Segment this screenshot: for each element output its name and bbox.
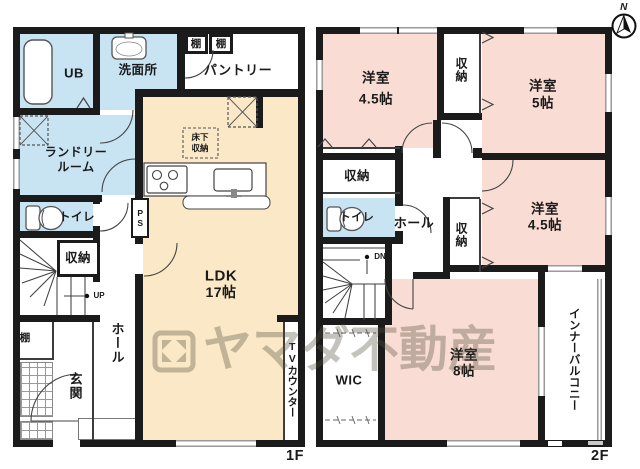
label-stairs-down: DN [374, 253, 386, 261]
balcony-opening [548, 441, 562, 446]
wall [316, 237, 403, 244]
wall [93, 34, 100, 110]
wall [413, 272, 450, 279]
wall [316, 153, 403, 160]
balcony-edge [597, 279, 602, 440]
label-laundry-2: ルーム [57, 161, 94, 173]
window [316, 60, 323, 90]
window [13, 159, 20, 189]
wall [135, 97, 143, 200]
window [176, 440, 256, 447]
label-floor-1f: 1F [286, 449, 304, 464]
closet-front-line [479, 199, 481, 272]
label-bedroom-e: 洋室 [531, 202, 559, 216]
label-bedroom-s: 洋室 [450, 348, 478, 362]
label-shelf-b: 棚 [216, 39, 227, 50]
wall [437, 34, 444, 119]
window [447, 440, 520, 447]
label-bedroom-ne-size: 5帖 [532, 96, 554, 110]
wall [482, 153, 605, 160]
wall [277, 315, 298, 322]
label-underfloor-1: 床下 [191, 133, 208, 142]
wall [443, 197, 450, 272]
label-ldk-size: 17帖 [205, 285, 236, 299]
compass-icon [613, 15, 636, 38]
label-closet-center: 収納 [455, 222, 467, 248]
label-wic: WIC [336, 374, 363, 387]
label-inner-balcony: インナーバルコニー [567, 307, 579, 411]
window [605, 197, 612, 235]
wall [433, 120, 441, 158]
entrance-tile-lower [20, 421, 53, 440]
wall [538, 272, 545, 327]
hall-entrance-divider [92, 322, 94, 440]
wall [256, 97, 263, 128]
label-toilet-2f: トイレ [340, 213, 375, 224]
label-shelf-entry: 棚 [20, 333, 31, 344]
label-bedroom-nw-size: 4.5帖 [359, 92, 393, 106]
label-bedroom-e-size: 4.5帖 [528, 218, 562, 232]
closet-front-line [323, 147, 400, 149]
wall [316, 318, 392, 325]
label-shelf-a: 棚 [191, 39, 202, 50]
label-hall-1f: ホール [111, 322, 124, 364]
label-floor-2f: 2F [591, 449, 609, 464]
window [605, 74, 612, 112]
wall [13, 315, 100, 322]
label-entrance: 玄関 [69, 372, 82, 400]
tv-counter-line [283, 322, 285, 440]
wall [93, 226, 100, 232]
label-closet-north: 収納 [455, 57, 467, 83]
balcony-bottom-line [588, 441, 603, 445]
label-ldk: LDK [205, 269, 237, 284]
label-bedroom-nw: 洋室 [362, 71, 390, 85]
down-arrow-dot [365, 255, 369, 259]
wall [378, 325, 385, 440]
shelf-line [52, 322, 54, 360]
label-bedroom-ne: 洋室 [529, 79, 557, 93]
wall [473, 148, 482, 158]
wall [135, 274, 143, 440]
wall [13, 27, 305, 34]
label-hall-2f: ホール [394, 217, 435, 230]
wall [13, 231, 100, 238]
label-closet-west: 収納 [344, 170, 370, 183]
label-underfloor-2: 収納 [191, 144, 208, 153]
label-toilet-1f: トイレ [59, 212, 95, 224]
wall [13, 195, 102, 202]
room-bedroom-ne-fill [482, 34, 605, 153]
wall [177, 34, 185, 92]
label-laundry-1: ランドリー [45, 146, 108, 158]
up-arrow-dot [85, 294, 89, 298]
window [524, 27, 557, 34]
entrance-tile-upper [20, 362, 53, 417]
closet-bottom-line [323, 192, 400, 194]
label-stairs-up: UP [93, 292, 104, 300]
room-washroom-fill2 [100, 90, 137, 110]
label-compass-north: N [620, 3, 628, 13]
label-washroom: 洗面所 [118, 64, 157, 77]
shelf-line [20, 358, 53, 360]
sliding-window [538, 327, 545, 396]
closet-top-line [450, 197, 480, 199]
wall [135, 89, 298, 97]
label-bedroom-s-size: 8帖 [453, 364, 475, 378]
label-storage-1f: 収納 [65, 252, 91, 265]
label-pipe-space: PS [136, 208, 145, 228]
wall [437, 113, 482, 120]
label-pantry: パントリー [204, 64, 272, 77]
window-mullion [397, 27, 399, 34]
floorplan-canvas: UB 洗面所 棚 棚 パントリー ランドリー ルーム トイレ 収納 床下 収納 … [0, 0, 640, 469]
wall [298, 27, 305, 447]
window [548, 265, 582, 272]
closet-front-line [479, 34, 481, 114]
wall [538, 396, 545, 447]
label-tv-counter: TVカウンター [287, 341, 298, 418]
wall [93, 199, 100, 204]
front-door-gap [53, 440, 80, 447]
wall [13, 108, 100, 115]
entrance-step [78, 418, 143, 440]
window [13, 117, 20, 149]
wall [395, 160, 403, 206]
label-ub: UB [64, 67, 84, 80]
